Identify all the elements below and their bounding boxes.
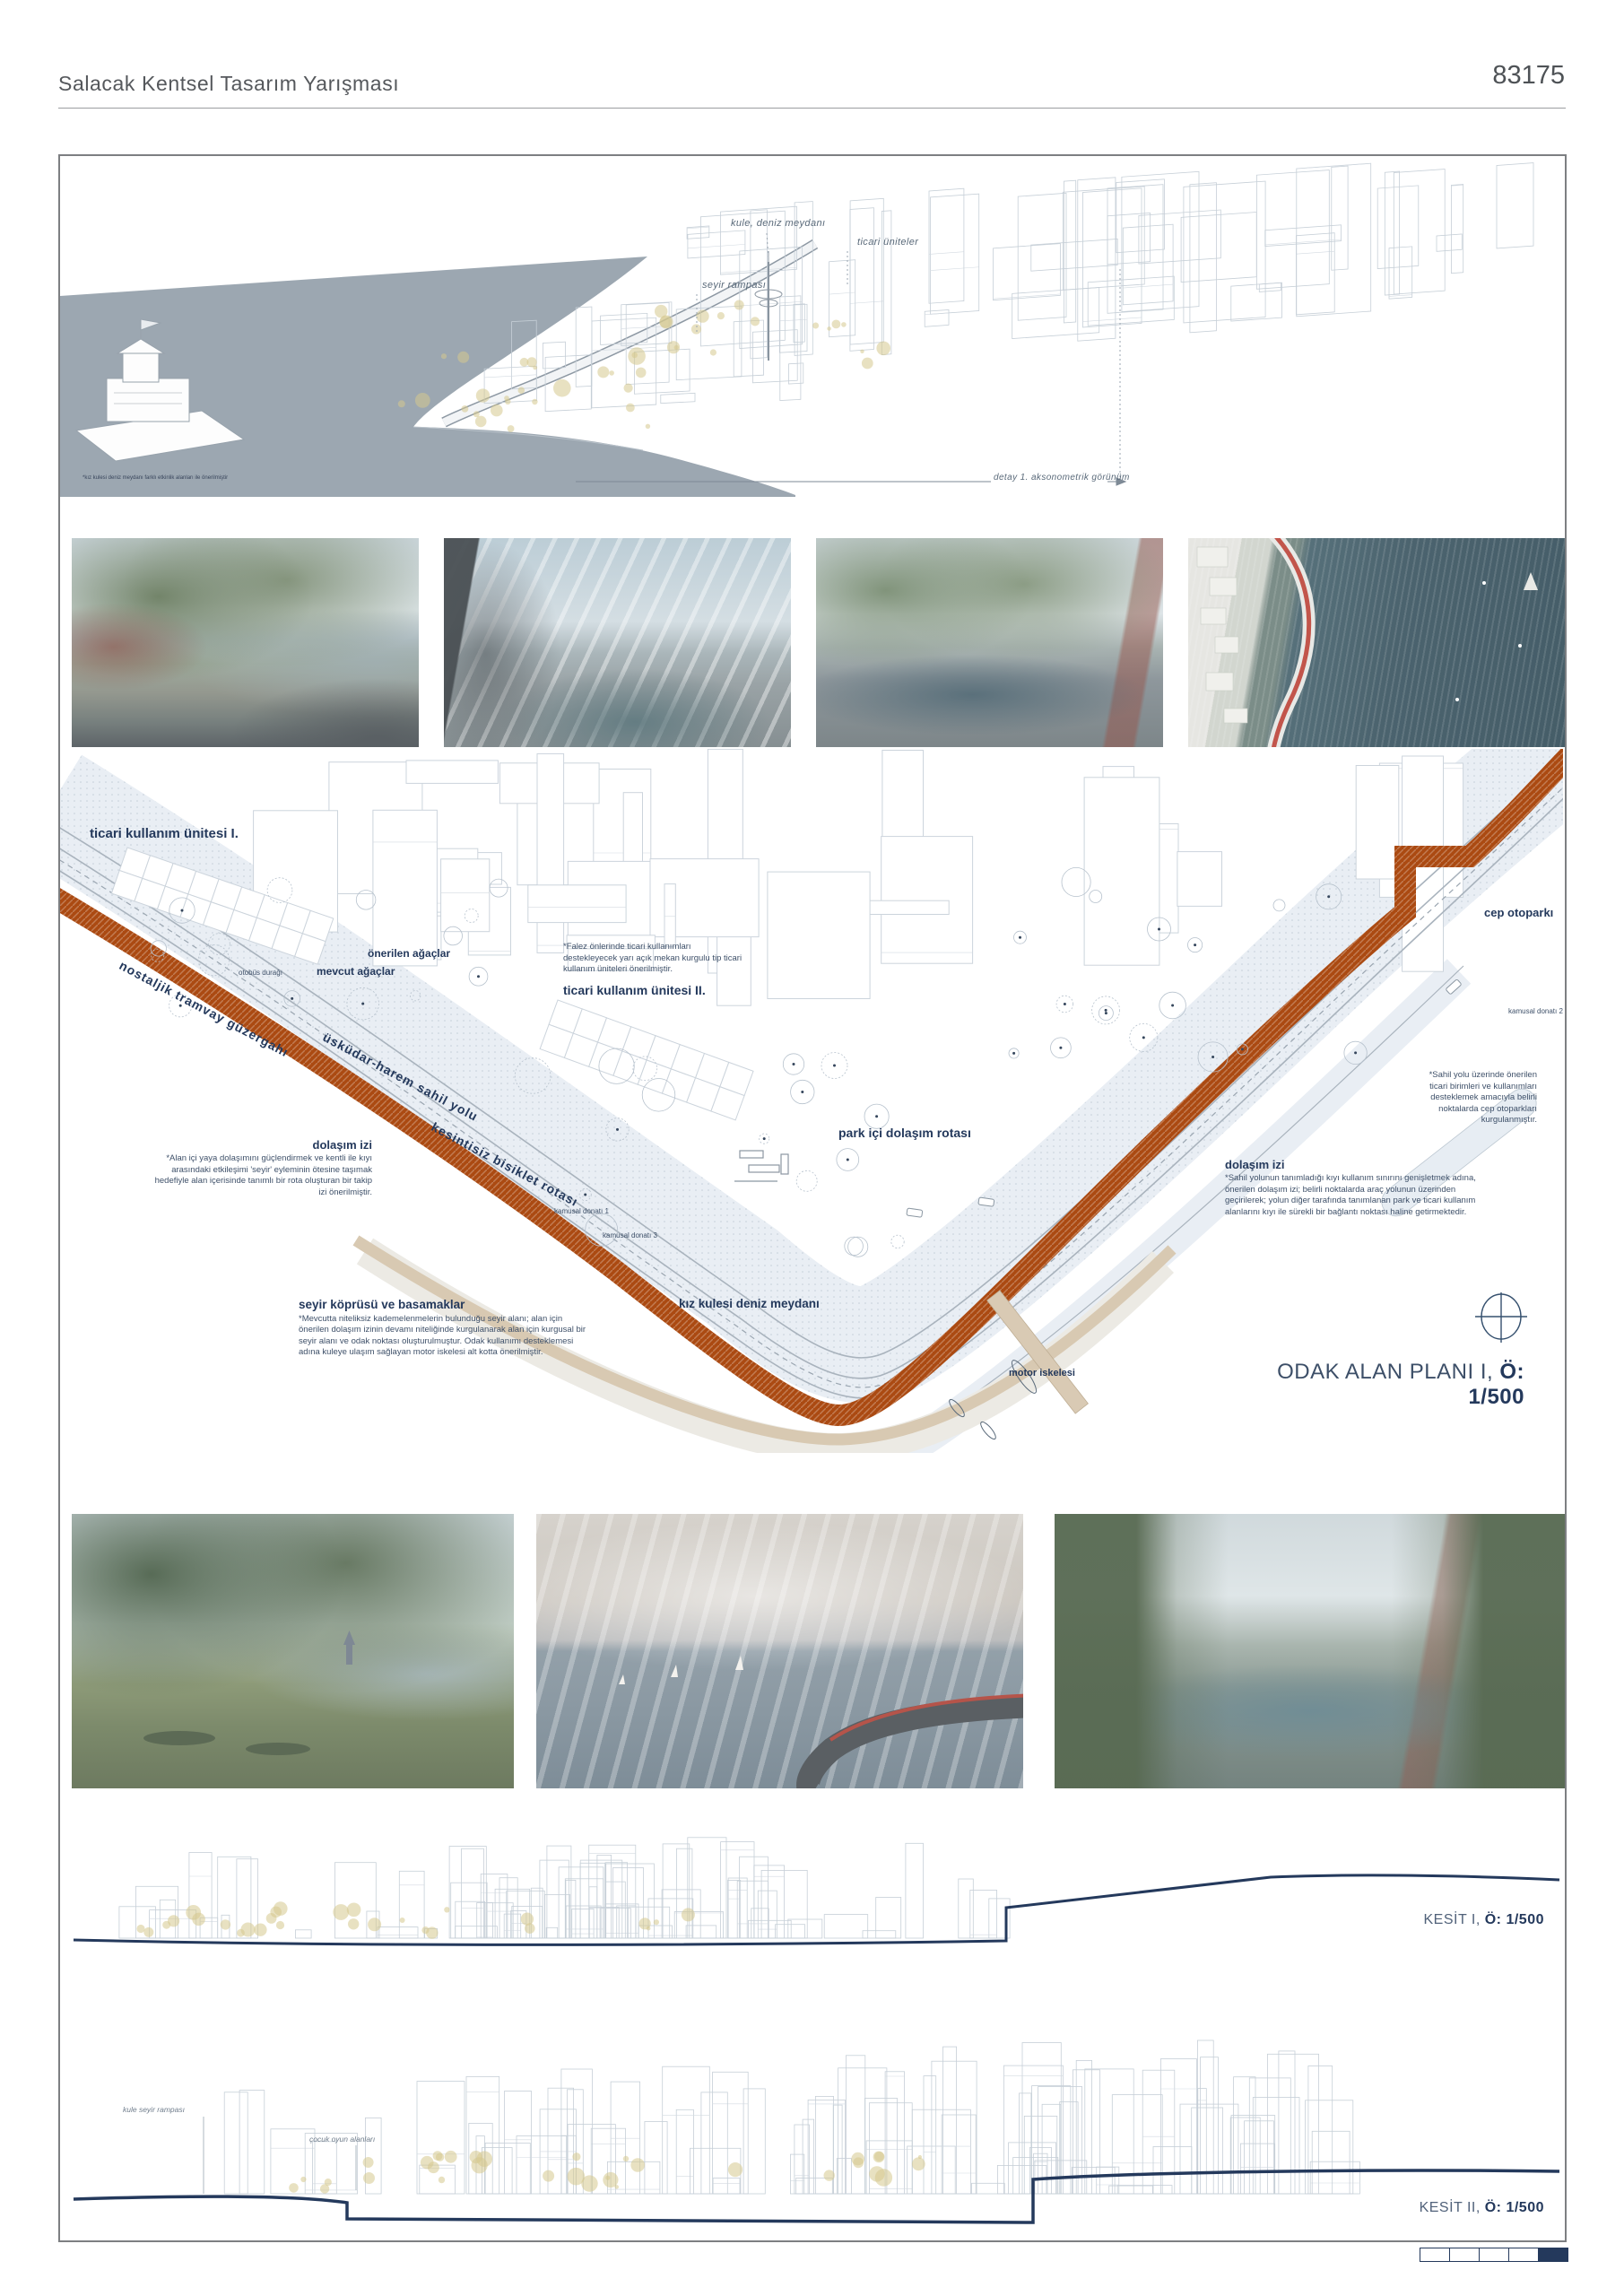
render-photo-street-canal (816, 538, 1163, 747)
plan-label-park-rota: park içi dolaşım rotası (838, 1126, 971, 1140)
site-plan-drawing (60, 749, 1563, 1453)
plan-label-unit2: ticari kullanım ünitesi II. (563, 983, 706, 997)
plan-title-text: ODAK ALAN PLANI I, (1277, 1360, 1499, 1384)
plan-note-falez: *Falez önlerinde ticari kullanımları des… (563, 942, 743, 976)
water-area (60, 257, 795, 497)
render-photo-aerial-coast (1188, 538, 1565, 747)
plan-label-otobus: otobüs durağı (239, 969, 282, 977)
page-title: Salacak Kentsel Tasarım Yarışması (58, 72, 399, 96)
scale-cell-filled (1539, 2248, 1568, 2262)
north-compass (1475, 1292, 1527, 1343)
section-1-groundline (74, 1875, 1559, 1945)
dolasim-1-title: dolaşım izi (152, 1137, 372, 1152)
section-2-scale: Ö: 1/500 (1485, 2200, 1544, 2215)
section-1-label: KESİT I, Ö: 1/500 (1338, 1912, 1544, 1928)
sunset-overlay (536, 1514, 1023, 1788)
section-1-skyline (119, 1843, 1010, 1938)
axonometric-drawing (60, 161, 1563, 511)
section-2-label-cocuk: çocuk oyun alanları (309, 2135, 375, 2144)
competition-board: Salacak Kentsel Tasarım Yarışması 83175 (0, 0, 1624, 2296)
render-photo-canal-park (1055, 1514, 1565, 1788)
section-2-leaders (204, 2117, 356, 2194)
header-divider (58, 108, 1566, 109)
section-1-title: KESİT I, (1424, 1912, 1485, 1927)
plan-label-onerilen-agaclar: önerilen ağaçlar (368, 947, 450, 960)
section-1-skyline-dense (451, 1838, 822, 1938)
lawn-overlay (72, 1514, 514, 1788)
section-2-label: KESİT II, Ö: 1/500 (1338, 2200, 1544, 2216)
plan-note-cep: *Sahil yolu üzerinde önerilen ticari bir… (1410, 1070, 1537, 1126)
plan-note-dolasim-2: dolaşım izi *Sahil yolunun tanımladığı k… (1225, 1157, 1487, 1218)
scale-cell (1509, 2248, 1539, 2262)
section-2-title: KESİT II, (1420, 2200, 1485, 2215)
seyir-title: seyir köprüsü ve basamaklar (299, 1297, 595, 1313)
entry-code: 83175 (1385, 61, 1565, 91)
plan-note-seyir: seyir köprüsü ve basamaklar *Mevcutta ni… (299, 1297, 595, 1359)
render-photo-lawn-park (72, 1514, 514, 1788)
plan-note-dolasim-1: dolaşım izi *Alan içi yaya dolaşımını gü… (152, 1137, 372, 1198)
section-2-label-kule-rampa: kule seyir rampası (123, 2105, 185, 2114)
tower-note: *kız kulesi deniz meydanı farklı etkinli… (83, 475, 228, 481)
plan-label-motor-iskelesi: motor iskelesi (1009, 1368, 1075, 1378)
section-1-scale: Ö: 1/500 (1485, 1912, 1544, 1927)
plan-label-kizkulesi: kız kulesi deniz meydanı (679, 1297, 820, 1310)
scale-cell (1480, 2248, 1509, 2262)
plan-title: ODAK ALAN PLANI I, Ö: 1/500 (1236, 1360, 1524, 1410)
render-photo-park-shore (72, 538, 419, 747)
scale-cell (1420, 2248, 1450, 2262)
playground-glyphs (734, 1151, 788, 1181)
axon-label-kule: kule, deniz meydanı (731, 218, 825, 229)
axon-label-ticari: ticari üniteler (857, 237, 918, 248)
plan-label-mevcut-agaclar: mevcut ağaçlar (317, 965, 395, 978)
axon-city-wireframe (687, 161, 1533, 369)
plan-label-unit1: ticari kullanım ünitesi I. (90, 826, 239, 841)
plan-label-kamusal-2: kamusal donatı 2 (1508, 1007, 1563, 1015)
scale-cell (1450, 2248, 1480, 2262)
dolasim-1-body: *Alan içi yaya dolaşımını güçlendirmek v… (155, 1153, 372, 1197)
section-1-drawing (60, 1821, 1563, 1978)
section-2-trees (289, 2151, 925, 2194)
axon-label-seyir: seyir rampası (702, 280, 766, 291)
graphic-scale-bar (1420, 2248, 1568, 2262)
plan-label-kamusal-3: kamusal donatı 3 (603, 1231, 657, 1239)
render-photo-pier-gate (444, 538, 791, 747)
dolasim-2-body: *Sahil yolunun tanımladığı kıyı kullanım… (1225, 1173, 1476, 1217)
axon-caption: detay 1. aksonometrik görünüm (994, 473, 1130, 483)
dolasim-2-title: dolaşım izi (1225, 1157, 1487, 1172)
seyir-body: *Mevcutta niteliksiz kademelenmelerin bu… (299, 1314, 586, 1358)
plan-label-cep-otoparki: cep otoparkı (1484, 906, 1553, 919)
plan-label-kamusal-1: kamusal donatı 1 (554, 1207, 609, 1215)
aerial-overlay (1188, 538, 1565, 747)
render-photo-sunset-sea (536, 1514, 1023, 1788)
